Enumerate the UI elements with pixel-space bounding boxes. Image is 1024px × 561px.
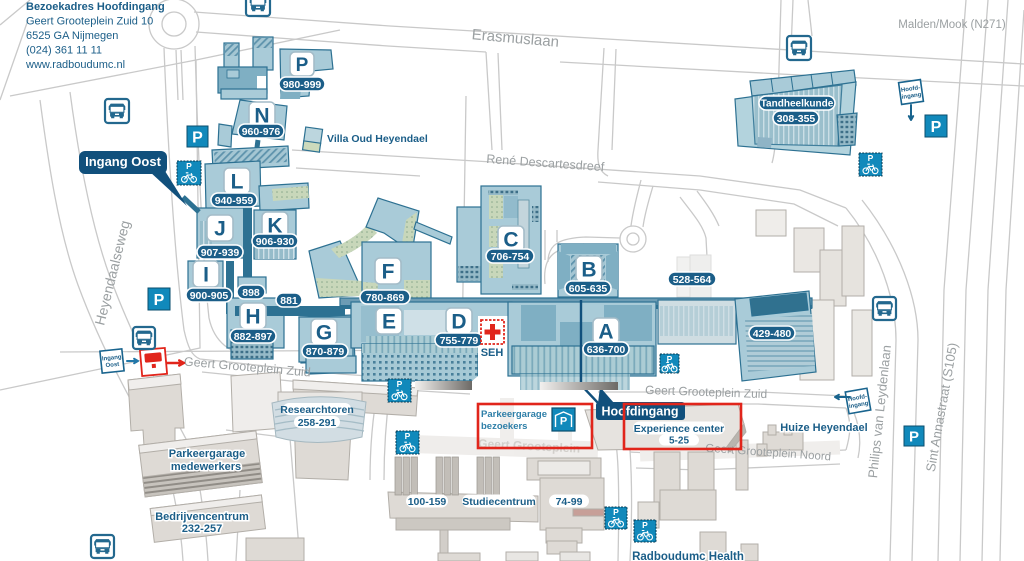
- svg-text:906-930: 906-930: [256, 236, 295, 248]
- svg-text:Malden/Mook (N271): Malden/Mook (N271): [898, 19, 1006, 31]
- svg-text:P: P: [931, 119, 942, 136]
- svg-text:Hoofdingang: Hoofdingang: [601, 405, 678, 419]
- svg-text:6525 GA Nijmegen: 6525 GA Nijmegen: [26, 30, 118, 42]
- svg-text:Huize Heyendael: Huize Heyendael: [780, 422, 867, 434]
- svg-text:Bezoekadres Hoofdingang: Bezoekadres Hoofdingang: [26, 1, 165, 13]
- svg-text:429-480: 429-480: [753, 328, 792, 340]
- svg-text:Bedrijvencentrum: Bedrijvencentrum: [155, 511, 249, 523]
- svg-text:100-159: 100-159: [408, 496, 447, 508]
- svg-text:P: P: [642, 520, 648, 530]
- svg-text:881: 881: [280, 295, 298, 307]
- svg-text:L: L: [231, 171, 244, 194]
- svg-text:P: P: [868, 153, 874, 163]
- svg-text:258-291: 258-291: [298, 417, 337, 429]
- svg-text:bezoekers: bezoekers: [481, 421, 527, 432]
- svg-text:636-700: 636-700: [587, 344, 626, 356]
- svg-text:P: P: [560, 416, 567, 428]
- svg-text:Studiecentrum: Studiecentrum: [462, 496, 536, 508]
- svg-text:medewerkers: medewerkers: [171, 461, 241, 473]
- svg-text:Parkeergarage: Parkeergarage: [481, 409, 547, 420]
- svg-text:Researchtoren: Researchtoren: [280, 404, 354, 416]
- svg-text:308-355: 308-355: [777, 113, 816, 125]
- svg-text:G: G: [316, 322, 332, 345]
- svg-text:605-635: 605-635: [569, 283, 608, 295]
- svg-text:P: P: [154, 292, 165, 309]
- svg-text:E: E: [382, 311, 396, 334]
- svg-text:Geert Grooteplein Zuid 10: Geert Grooteplein Zuid 10: [26, 16, 153, 28]
- svg-text:980-999: 980-999: [283, 79, 322, 91]
- svg-text:P: P: [909, 429, 919, 446]
- svg-text:D: D: [451, 311, 466, 334]
- svg-text:900-905: 900-905: [190, 290, 229, 302]
- svg-text:A: A: [598, 321, 613, 344]
- svg-text:870-879: 870-879: [306, 346, 345, 358]
- svg-text:(024) 361 11 11: (024) 361 11 11: [26, 45, 102, 57]
- svg-text:F: F: [382, 261, 395, 284]
- svg-text:P: P: [186, 161, 192, 171]
- svg-text:528-564: 528-564: [673, 274, 712, 286]
- svg-text:Ingang Oost: Ingang Oost: [85, 154, 162, 169]
- svg-text:Parkeergarage: Parkeergarage: [169, 448, 245, 460]
- svg-text:Experience center: Experience center: [634, 423, 724, 435]
- svg-text:I: I: [203, 264, 209, 287]
- svg-text:SEH: SEH: [481, 347, 504, 359]
- svg-text:P: P: [296, 55, 309, 76]
- svg-text:Villa Oud Heyendael: Villa Oud Heyendael: [327, 133, 428, 145]
- svg-text:5-25: 5-25: [669, 436, 689, 447]
- svg-text:74-99: 74-99: [556, 496, 583, 508]
- svg-text:Radboudumc Health: Radboudumc Health: [632, 551, 744, 561]
- svg-text:Tandheelkunde: Tandheelkunde: [761, 99, 834, 110]
- svg-text:960-976: 960-976: [242, 126, 281, 138]
- svg-text:C: C: [503, 229, 518, 252]
- svg-text:P: P: [613, 507, 619, 517]
- svg-text:H: H: [245, 306, 260, 329]
- svg-text:780-869: 780-869: [366, 292, 405, 304]
- svg-text:706-754: 706-754: [491, 251, 530, 263]
- svg-text:www.radboudumc.nl: www.radboudumc.nl: [25, 59, 125, 71]
- svg-text:P: P: [397, 379, 403, 389]
- svg-text:J: J: [214, 218, 226, 241]
- svg-text:940-959: 940-959: [215, 195, 254, 207]
- svg-text:907-939: 907-939: [201, 247, 240, 259]
- svg-text:B: B: [581, 259, 596, 282]
- svg-text:P: P: [405, 431, 411, 441]
- svg-text:755-779: 755-779: [440, 335, 479, 347]
- svg-text:898: 898: [242, 287, 260, 299]
- svg-text:P: P: [192, 129, 203, 146]
- svg-text:882-897: 882-897: [234, 331, 273, 343]
- svg-text:232-257: 232-257: [182, 523, 222, 535]
